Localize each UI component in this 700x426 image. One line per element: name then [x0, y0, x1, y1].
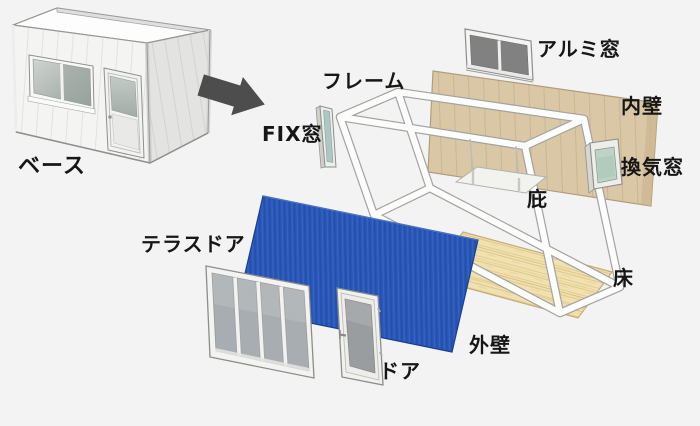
base-door — [104, 68, 144, 158]
diagram-canvas — [0, 0, 700, 426]
base-unit — [13, 8, 210, 163]
exploded-parts-diagram: ベース フレーム FIX窓 アルミ窓 内壁 換気窓 庇 床 テラスドア ドア 外… — [0, 0, 700, 426]
base-side-face — [147, 30, 210, 163]
aluminum-window-label: アルミ窓 — [537, 38, 621, 60]
terrace-door-label: テラスドア — [141, 233, 246, 255]
outer-wall-label: 外壁 — [469, 334, 511, 356]
door-handle-lever — [339, 335, 346, 336]
base-door-knob — [108, 115, 112, 119]
door-label: ドア — [379, 360, 421, 382]
vent-window — [585, 139, 622, 193]
aluminum-window — [465, 29, 533, 82]
door-unit — [337, 288, 383, 385]
frame-label: フレーム — [322, 70, 405, 92]
floor-label: 床 — [613, 267, 634, 289]
canopy-label: 庇 — [527, 188, 548, 210]
fix-window-label: FIX窓 — [262, 123, 323, 145]
base-label: ベース — [18, 155, 86, 179]
vent-window-label: 換気窓 — [621, 156, 684, 178]
inner-wall-label: 内壁 — [621, 95, 663, 117]
